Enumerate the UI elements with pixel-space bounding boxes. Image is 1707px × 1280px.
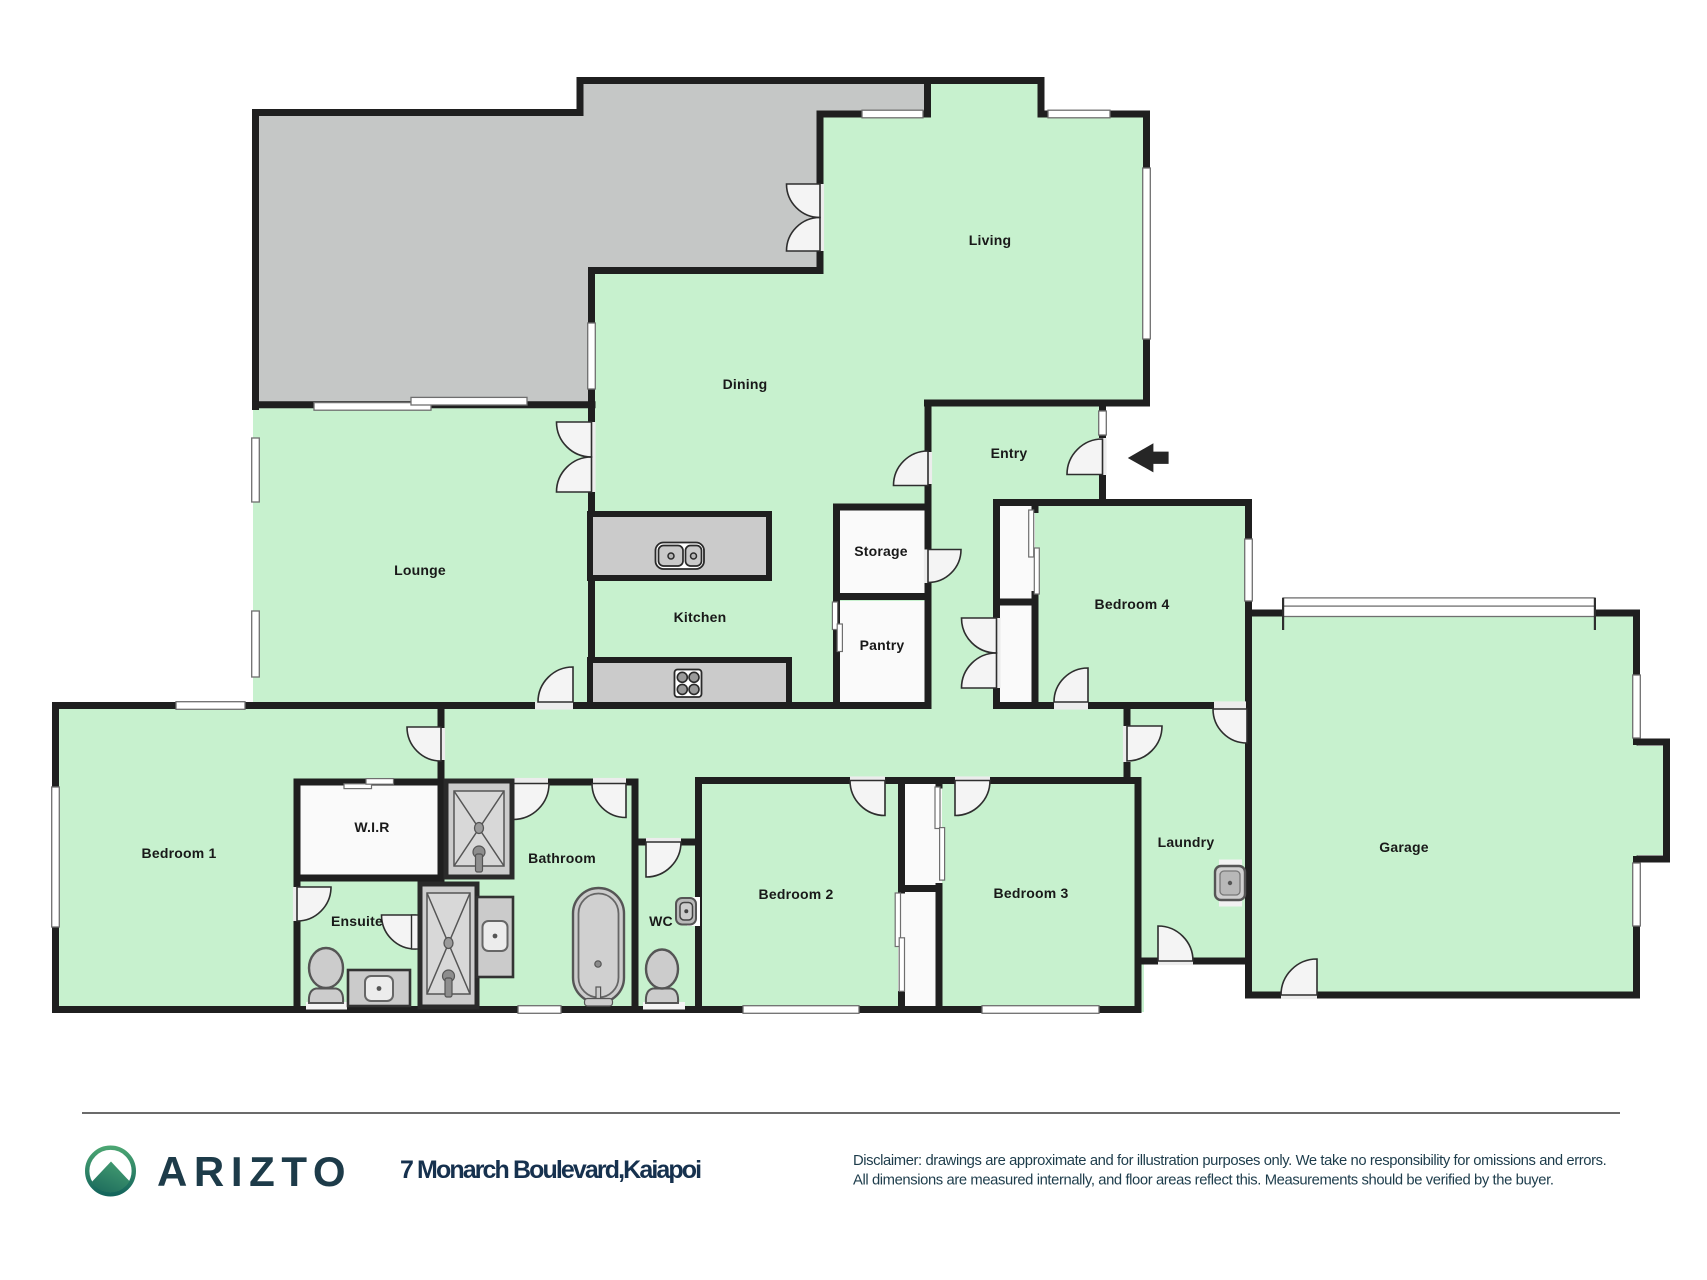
svg-text:Dining: Dining (723, 376, 768, 392)
svg-text:ARIZTO: ARIZTO (157, 1148, 352, 1195)
svg-text:Bedroom 3: Bedroom 3 (994, 885, 1069, 901)
svg-text:Pantry: Pantry (860, 637, 905, 653)
svg-text:Storage: Storage (854, 543, 908, 559)
svg-text:Garage: Garage (1379, 839, 1428, 855)
svg-text:Bedroom 4: Bedroom 4 (1095, 596, 1170, 612)
svg-text:Bedroom 1: Bedroom 1 (142, 845, 217, 861)
svg-text:Bathroom: Bathroom (528, 850, 596, 866)
svg-text:WC: WC (649, 913, 673, 929)
svg-text:Living: Living (969, 232, 1011, 248)
svg-text:All dimensions are measured in: All dimensions are measured internally, … (853, 1173, 1554, 1189)
svg-text:Bedroom 2: Bedroom 2 (759, 886, 834, 902)
svg-text:Entry: Entry (991, 445, 1028, 461)
svg-text:Kitchen: Kitchen (674, 609, 727, 625)
svg-text:Lounge: Lounge (394, 562, 446, 578)
svg-text:7 Monarch Boulevard,Kaiapoi: 7 Monarch Boulevard,Kaiapoi (400, 1156, 701, 1184)
svg-text:Disclaimer: drawings are appro: Disclaimer: drawings are approximate and… (853, 1153, 1606, 1169)
svg-text:Laundry: Laundry (1158, 834, 1215, 850)
svg-text:W.I.R: W.I.R (354, 819, 389, 835)
svg-text:Ensuite: Ensuite (331, 913, 383, 929)
